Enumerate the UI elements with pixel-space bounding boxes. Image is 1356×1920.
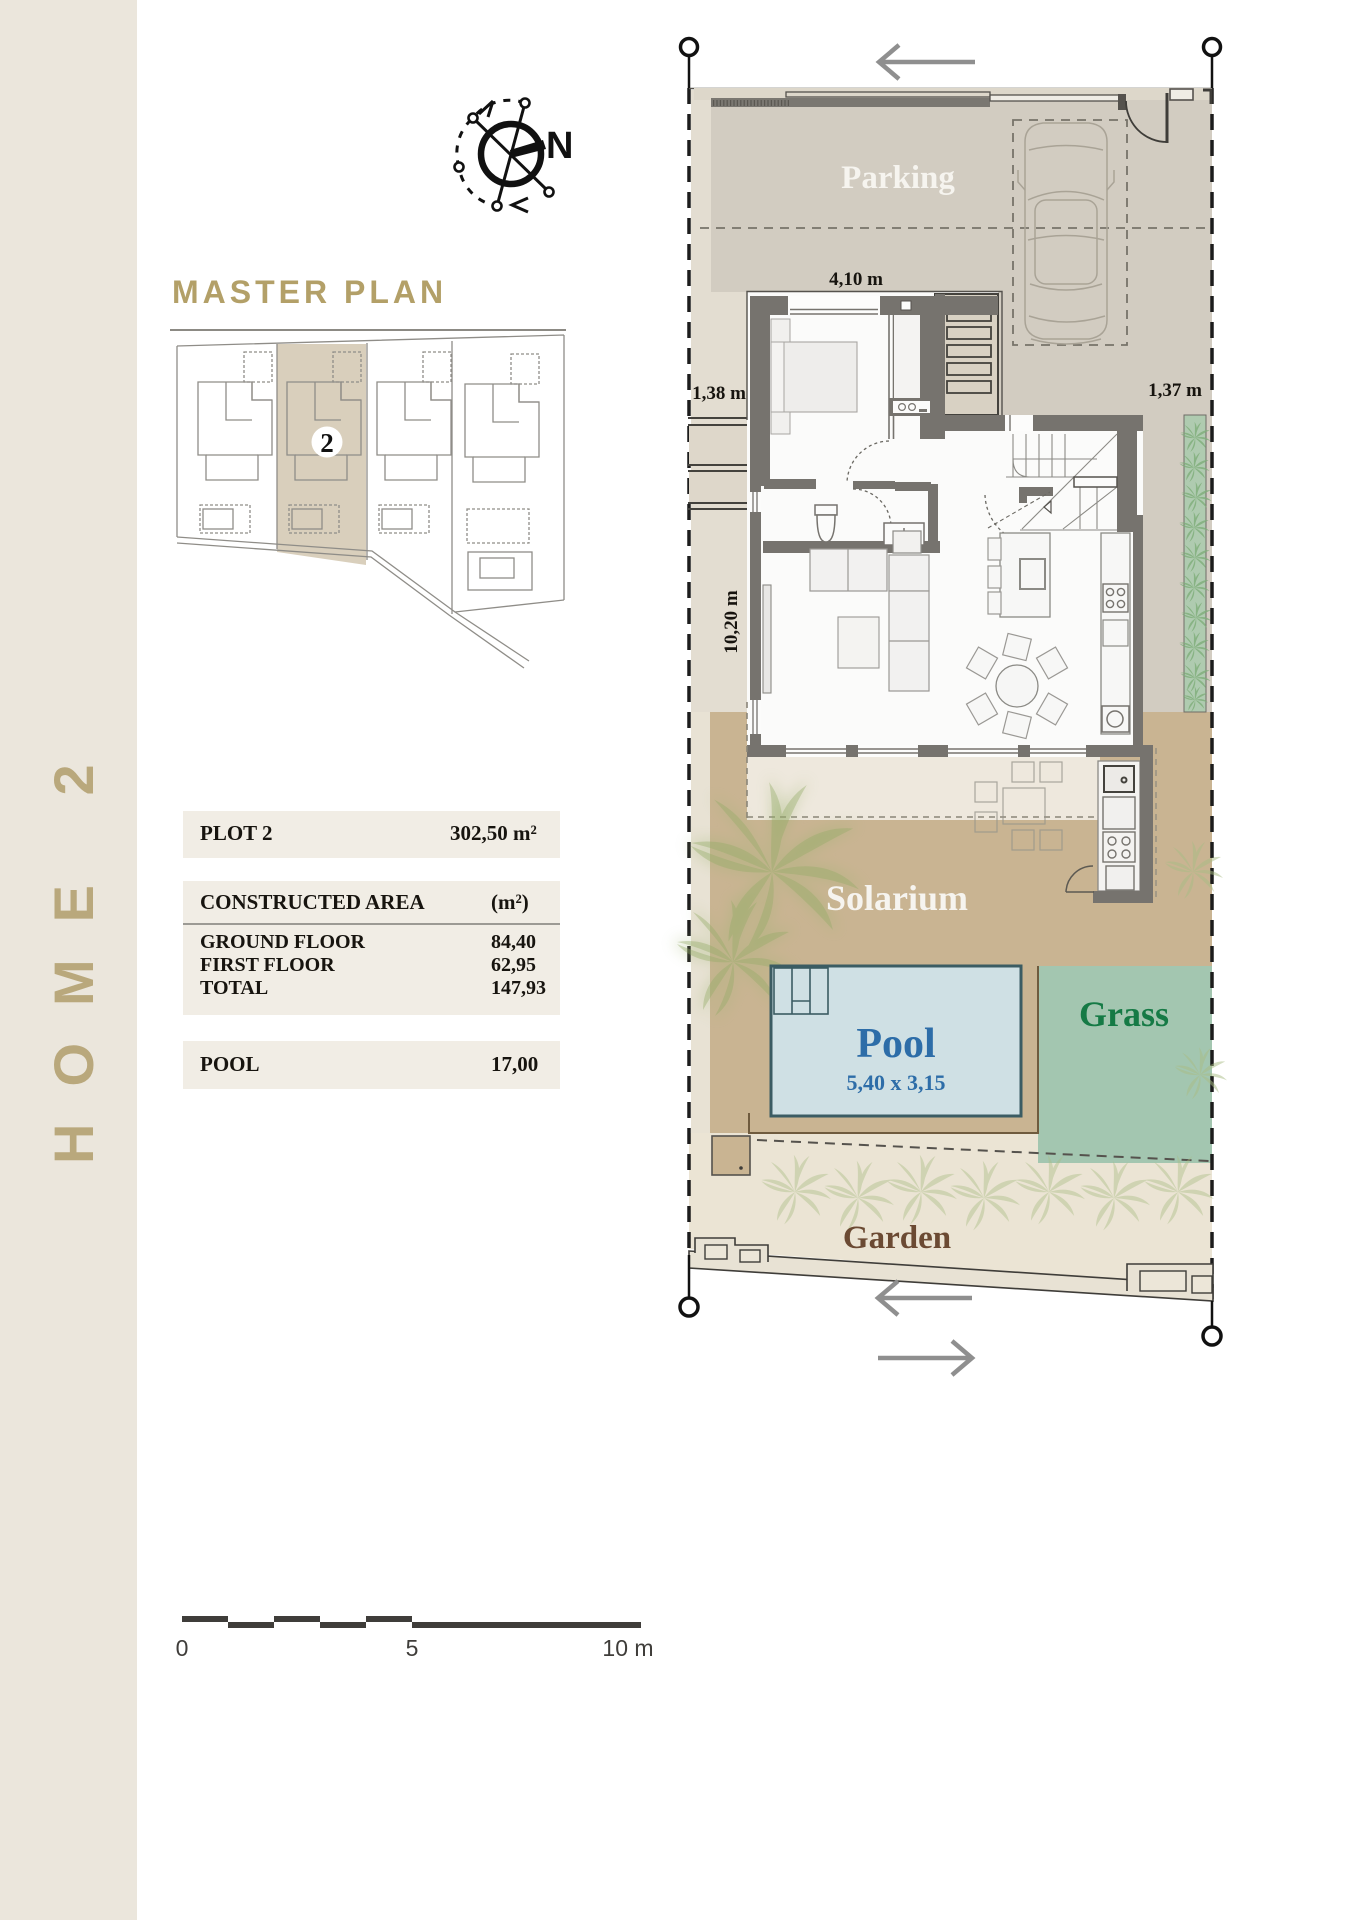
svg-text:Garden: Garden	[843, 1220, 951, 1256]
svg-text:4,10 m: 4,10 m	[829, 269, 883, 290]
svg-text:Grass: Grass	[1079, 994, 1169, 1034]
svg-text:0: 0	[176, 1635, 189, 1661]
svg-text:N: N	[546, 125, 573, 167]
svg-text:10,20 m: 10,20 m	[721, 590, 742, 654]
svg-text:5,40 x 3,15: 5,40 x 3,15	[847, 1070, 946, 1095]
svg-text:2: 2	[320, 428, 334, 458]
svg-text:Solarium: Solarium	[826, 878, 968, 918]
svg-text:Pool: Pool	[856, 1021, 935, 1067]
svg-text:1,37 m: 1,37 m	[1148, 380, 1202, 401]
svg-text:5: 5	[406, 1635, 419, 1661]
svg-text:1,38 m: 1,38 m	[692, 383, 746, 404]
svg-text:10 m: 10 m	[602, 1635, 653, 1661]
svg-text:Parking: Parking	[841, 160, 955, 196]
